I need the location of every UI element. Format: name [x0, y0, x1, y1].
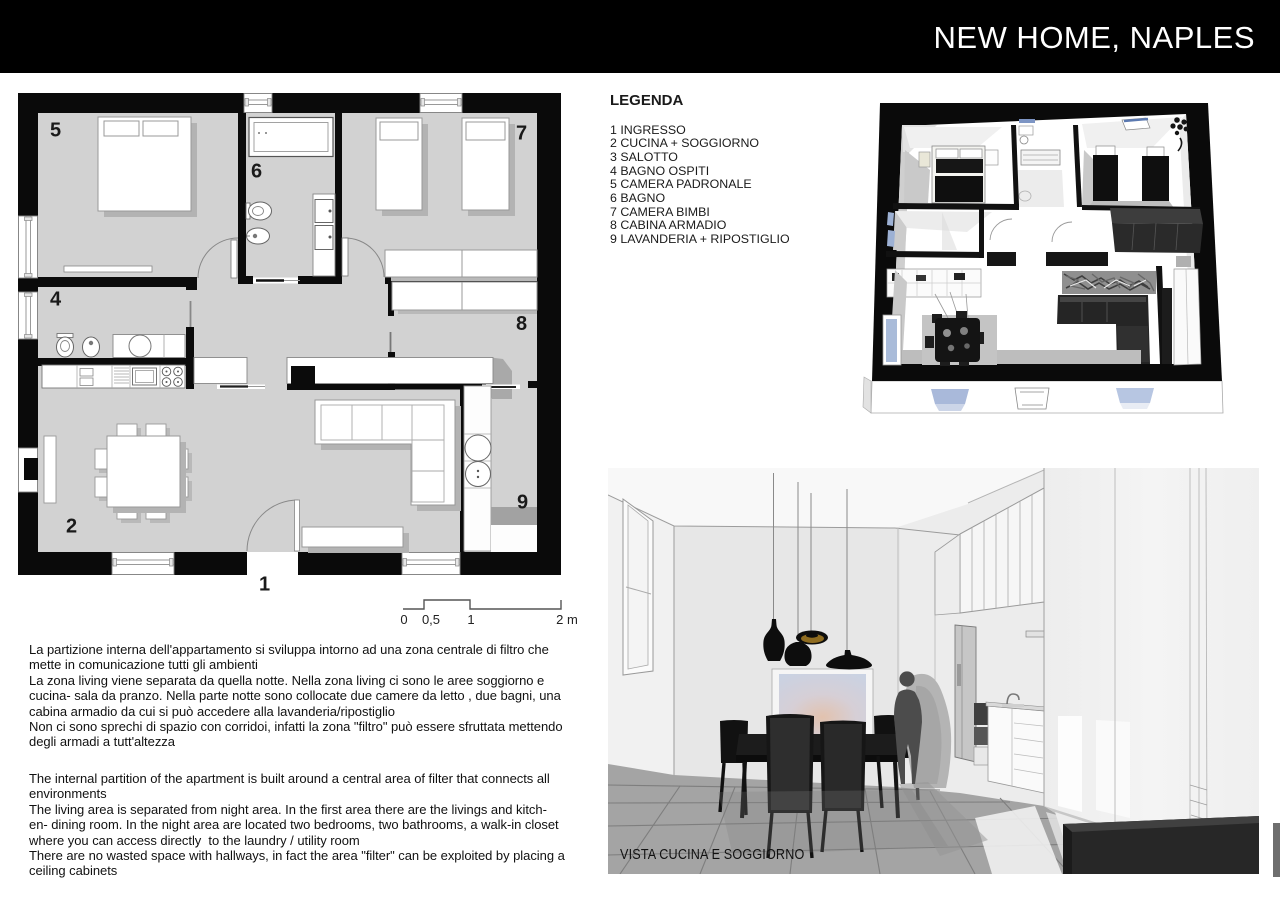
svg-text:1: 1	[467, 612, 474, 627]
svg-text:6: 6	[251, 161, 262, 183]
svg-text:2 m: 2 m	[556, 612, 578, 627]
svg-text:8: 8	[516, 313, 527, 335]
svg-text:0,5: 0,5	[422, 612, 440, 627]
svg-text:1: 1	[259, 574, 270, 594]
svg-text:2: 2	[66, 516, 77, 538]
svg-text:7: 7	[516, 123, 527, 145]
svg-text:0: 0	[400, 612, 407, 627]
svg-text:4: 4	[50, 289, 62, 311]
svg-text:5: 5	[50, 120, 61, 142]
svg-text:9: 9	[517, 492, 528, 514]
